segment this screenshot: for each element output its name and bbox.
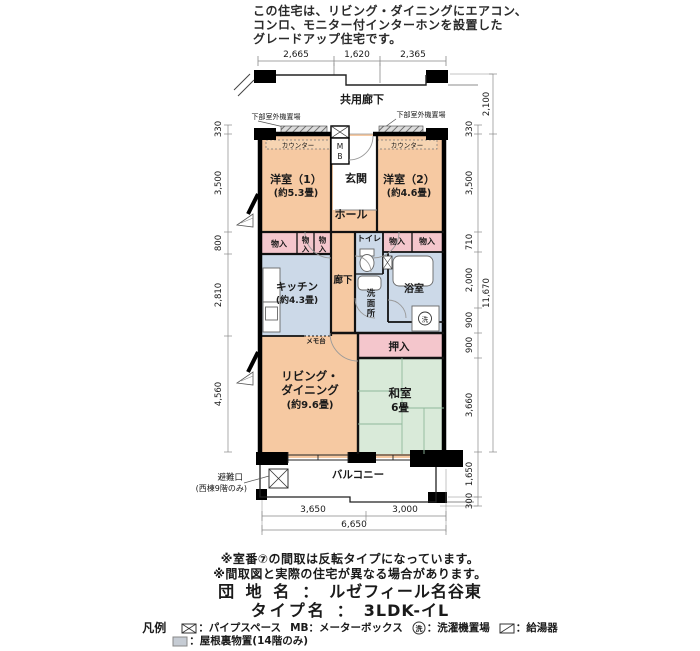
dim-left-330: 330 [214, 121, 224, 137]
emergency-hatch-symbol [244, 469, 288, 488]
label-yoshitsu1-size: (約5.3畳) [274, 187, 319, 199]
label-monoire-l3a: 物 [319, 235, 327, 245]
left-dimension-lines [224, 125, 232, 452]
label-corridor2: 廊下 [333, 274, 353, 286]
dim-left-3500: 3,500 [214, 171, 224, 195]
left-dimension-labels: 330 3,500 800 2,810 4,560 [214, 121, 224, 406]
label-memo: メモ台 [306, 336, 326, 345]
legend-label-mb: MB：メーターボックス [290, 622, 403, 635]
label-washroom-2: 面 [367, 299, 376, 309]
label-balcony: バルコニー [332, 469, 384, 481]
type-name-line: タイプ名：3LDK-イL [0, 601, 700, 620]
label-monoire-l3b: 入 [318, 245, 327, 254]
laundry-legend-icon: 洗 [412, 621, 426, 635]
label-genkan: 玄関 [345, 171, 367, 185]
label-kitchen-size: (約4.3畳) [276, 294, 318, 306]
label-monoire-l2b: 入 [301, 245, 310, 254]
pipe-space-symbol [383, 256, 392, 269]
dim-right-900b: 900 [465, 337, 475, 353]
legend-item-heater: ：給湯器 [499, 622, 558, 635]
label-washitsu-size: 6畳 [391, 402, 409, 414]
water-heater-legend-icon [499, 623, 515, 634]
legend-label-laundry: ：洗濯機置場 [427, 622, 490, 635]
legend-wrap: 凡例 ：パイプスペース MB：メーターボックス 洗：洗濯機置場 ：給湯器 ：屋根… [0, 621, 700, 651]
label-washroom-1: 洗 [367, 288, 376, 299]
outdoor-unit-label-right: 下部室外機置場 [397, 110, 446, 119]
top-dimension-labels: 2,665 1,620 2,365 [283, 50, 426, 60]
label-yoshitsu2-size: (約4.6畳) [387, 187, 432, 199]
legend-item-pipespace: ：パイプスペース [181, 622, 281, 635]
counter-label-right: カウンター [391, 141, 424, 150]
pipe-space-legend-icon [181, 623, 197, 634]
legend-item-mb: MB：メーターボックス [290, 622, 403, 635]
label-washitsu: 和室 [389, 386, 412, 400]
dim-right-330: 330 [465, 121, 475, 137]
type-separator: ： [337, 601, 354, 620]
legend-label-heater: ：給湯器 [516, 622, 558, 635]
label-living-size: (約9.6畳) [287, 398, 334, 411]
mb-label-m: M [337, 142, 343, 151]
kitchen-sink [266, 307, 278, 320]
label-monoire-l1: 物入 [271, 239, 287, 249]
dim-right-900a: 900 [465, 312, 475, 328]
water-heater-symbol-lower [237, 352, 258, 385]
label-bath: 浴室 [404, 282, 424, 295]
bottom-dimension-labels: 3,650 3,000 6,650 [300, 505, 418, 530]
outdoor-unit-label-left: 下部室外機置場 [252, 112, 301, 121]
corridor-label: 共用廊下 [340, 92, 384, 106]
estate-label: 団 地 名 [218, 582, 292, 601]
label-oshiire: 押入 [389, 340, 410, 353]
label-monoire-r1: 物入 [389, 236, 405, 246]
washbasin [358, 276, 381, 290]
label-living-1: リビング・ [281, 369, 339, 383]
dim-bottom-3000: 3,000 [392, 505, 418, 515]
legend-title: 凡例 [142, 622, 166, 635]
mb-label-b: B [337, 152, 342, 161]
label-washroom-3: 所 [366, 308, 376, 319]
counter-label-left: カウンター [282, 141, 315, 150]
dim-right-3500: 3,500 [465, 171, 475, 195]
legend-row-2: ：屋根裏物置(14階のみ) [172, 635, 557, 648]
dim-right-710: 710 [465, 234, 475, 250]
type-name: 3LDK-イL [364, 601, 449, 620]
footer-note-1: ※室番⑦の間取は反転タイプになっています。 [0, 552, 700, 567]
legend-row-1: 凡例 ：パイプスペース MB：メーターボックス 洗：洗濯機置場 ：給湯器 [142, 621, 557, 635]
legend-label-attic: ：屋根裏物置(14階のみ) [189, 635, 308, 648]
type-label: タイプ名 [251, 601, 327, 620]
legend: 凡例 ：パイプスペース MB：メーターボックス 洗：洗濯機置場 ：給湯器 ：屋根… [142, 621, 557, 648]
estate-separator: ： [302, 582, 319, 601]
laundry-circle-char: 洗 [422, 315, 429, 324]
dim-right-2000: 2,000 [465, 268, 475, 292]
dim-bottom-6650: 6,650 [341, 520, 367, 530]
legend-label-pipespace: ：パイプスペース [198, 622, 281, 635]
water-heater-symbol-upper [237, 194, 258, 227]
footer: ※室番⑦の間取は反転タイプになっています。 ※間取図と実際の住宅が異なる場合があ… [0, 552, 700, 651]
estate-name-line: 団 地 名：ルゼフィール名谷東 [0, 582, 700, 601]
dim-bottom-3650: 3,650 [300, 505, 326, 515]
dim-left-2810: 2,810 [214, 283, 224, 307]
legend-item-attic: ：屋根裏物置(14階のみ) [172, 635, 308, 648]
dim-left-4560: 4,560 [214, 382, 224, 406]
attic-storage-legend-icon [172, 636, 188, 647]
dim-right-3660: 3,660 [465, 393, 475, 417]
footer-note-2: ※間取図と実際の住宅が異なる場合があります。 [0, 567, 700, 582]
right-dimension-labels: 330 3,500 710 2,000 900 900 3,660 1,650 … [465, 92, 492, 509]
legend-item-laundry: 洗：洗濯機置場 [412, 621, 490, 635]
label-kitchen: キッチン [276, 281, 318, 293]
label-yoshitsu1: 洋室（1） [270, 172, 322, 186]
dim-top-1: 2,665 [283, 50, 309, 60]
dim-right-11670: 11,670 [482, 278, 492, 308]
dim-right-2100: 2,100 [482, 92, 492, 116]
label-toilet: トイレ [357, 234, 381, 243]
label-monoire-r2: 物入 [419, 236, 435, 246]
label-monoire-l2a: 物 [302, 235, 310, 245]
label-hall: ホール [335, 208, 368, 221]
dim-top-3: 2,365 [400, 50, 426, 60]
toilet-bowl [360, 255, 374, 272]
top-dimension-lines [258, 56, 446, 83]
label-yoshitsu2: 洋室（2） [383, 172, 435, 186]
bathtub [393, 256, 433, 286]
estate-name: ルゼフィール名谷東 [329, 582, 482, 601]
dim-top-2: 1,620 [344, 50, 370, 60]
label-living-2: ダイニング [281, 383, 339, 397]
laundry-legend-char: 洗 [415, 624, 422, 633]
emergency-hatch-label-2: (西棟9階のみ) [196, 483, 247, 493]
dim-right-300: 300 [465, 493, 475, 509]
dim-left-800: 800 [214, 235, 224, 251]
dim-right-1650: 1,650 [465, 462, 475, 486]
emergency-hatch-label-1: 避難口 [217, 472, 243, 483]
